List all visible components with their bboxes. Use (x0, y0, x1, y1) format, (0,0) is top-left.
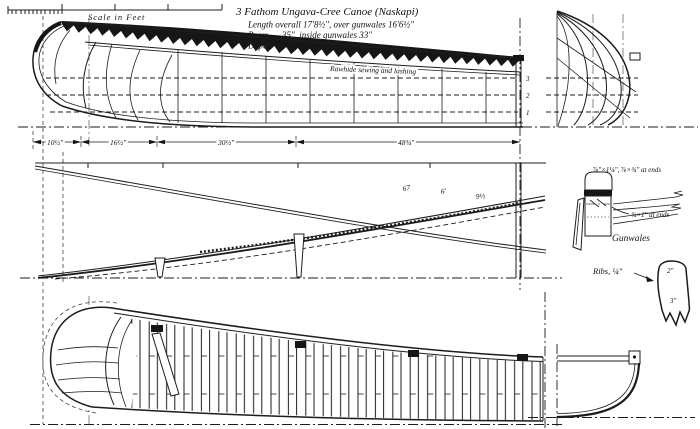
waterline-label-1: 1 (526, 109, 530, 117)
midship-section (528, 344, 695, 426)
scale-label: Scale in Feet (88, 12, 145, 22)
dimension-line: 10½" 16½" 30½" 48¾" (33, 131, 520, 149)
gunwale-size-ends: ¾×1" at ends (631, 211, 669, 219)
rib-blade-width: 3" (669, 297, 677, 305)
interior-plan-view (30, 302, 565, 425)
lashing-note: Rawhide sewing and lashing (329, 64, 417, 76)
rib-top-width: 2" (667, 267, 674, 275)
waterline-label-2: 2 (526, 92, 530, 100)
drawing-title: 3 Fathom Ungava-Cree Canoe (Naskapi) (235, 6, 419, 18)
offset-note-2: 6' (440, 186, 447, 196)
profile-view: 3 2 1 Rawhide sewing and lashing (33, 21, 530, 127)
dim-segment-3: 30½" (217, 138, 235, 147)
sheer-plan-view: 67 6' 9½ (20, 163, 562, 279)
waterline-label-3: 3 (525, 75, 530, 83)
gunwale-detail: ⅞"×1¼", ⅞×¾" at ends ¾×1" at ends Gunwal… (573, 166, 683, 250)
rib-detail: Ribs, ¼" 2" 3" (592, 261, 689, 325)
gunwale-label: Gunwales (612, 234, 650, 244)
canoe-lines-drawing: Scale in Feet 3 Fathom Ungava-Cree Canoe… (0, 0, 700, 429)
dim-segment-1: 10½" (47, 138, 64, 147)
body-plan (546, 11, 640, 127)
dim-segment-4: 48¾" (398, 138, 415, 147)
offset-note-1: 67 (402, 183, 411, 193)
drawing-canvas: Scale in Feet 3 Fathom Ungava-Cree Canoe… (0, 0, 700, 429)
spec-length: Length overall 17'8½", over gunwales 16'… (247, 20, 414, 30)
offset-note-3: 9½ (475, 191, 485, 201)
dim-segment-2: 16½" (110, 138, 127, 147)
rib-label: Ribs, ¼" (592, 266, 623, 276)
scale-bar: Scale in Feet (8, 4, 222, 22)
